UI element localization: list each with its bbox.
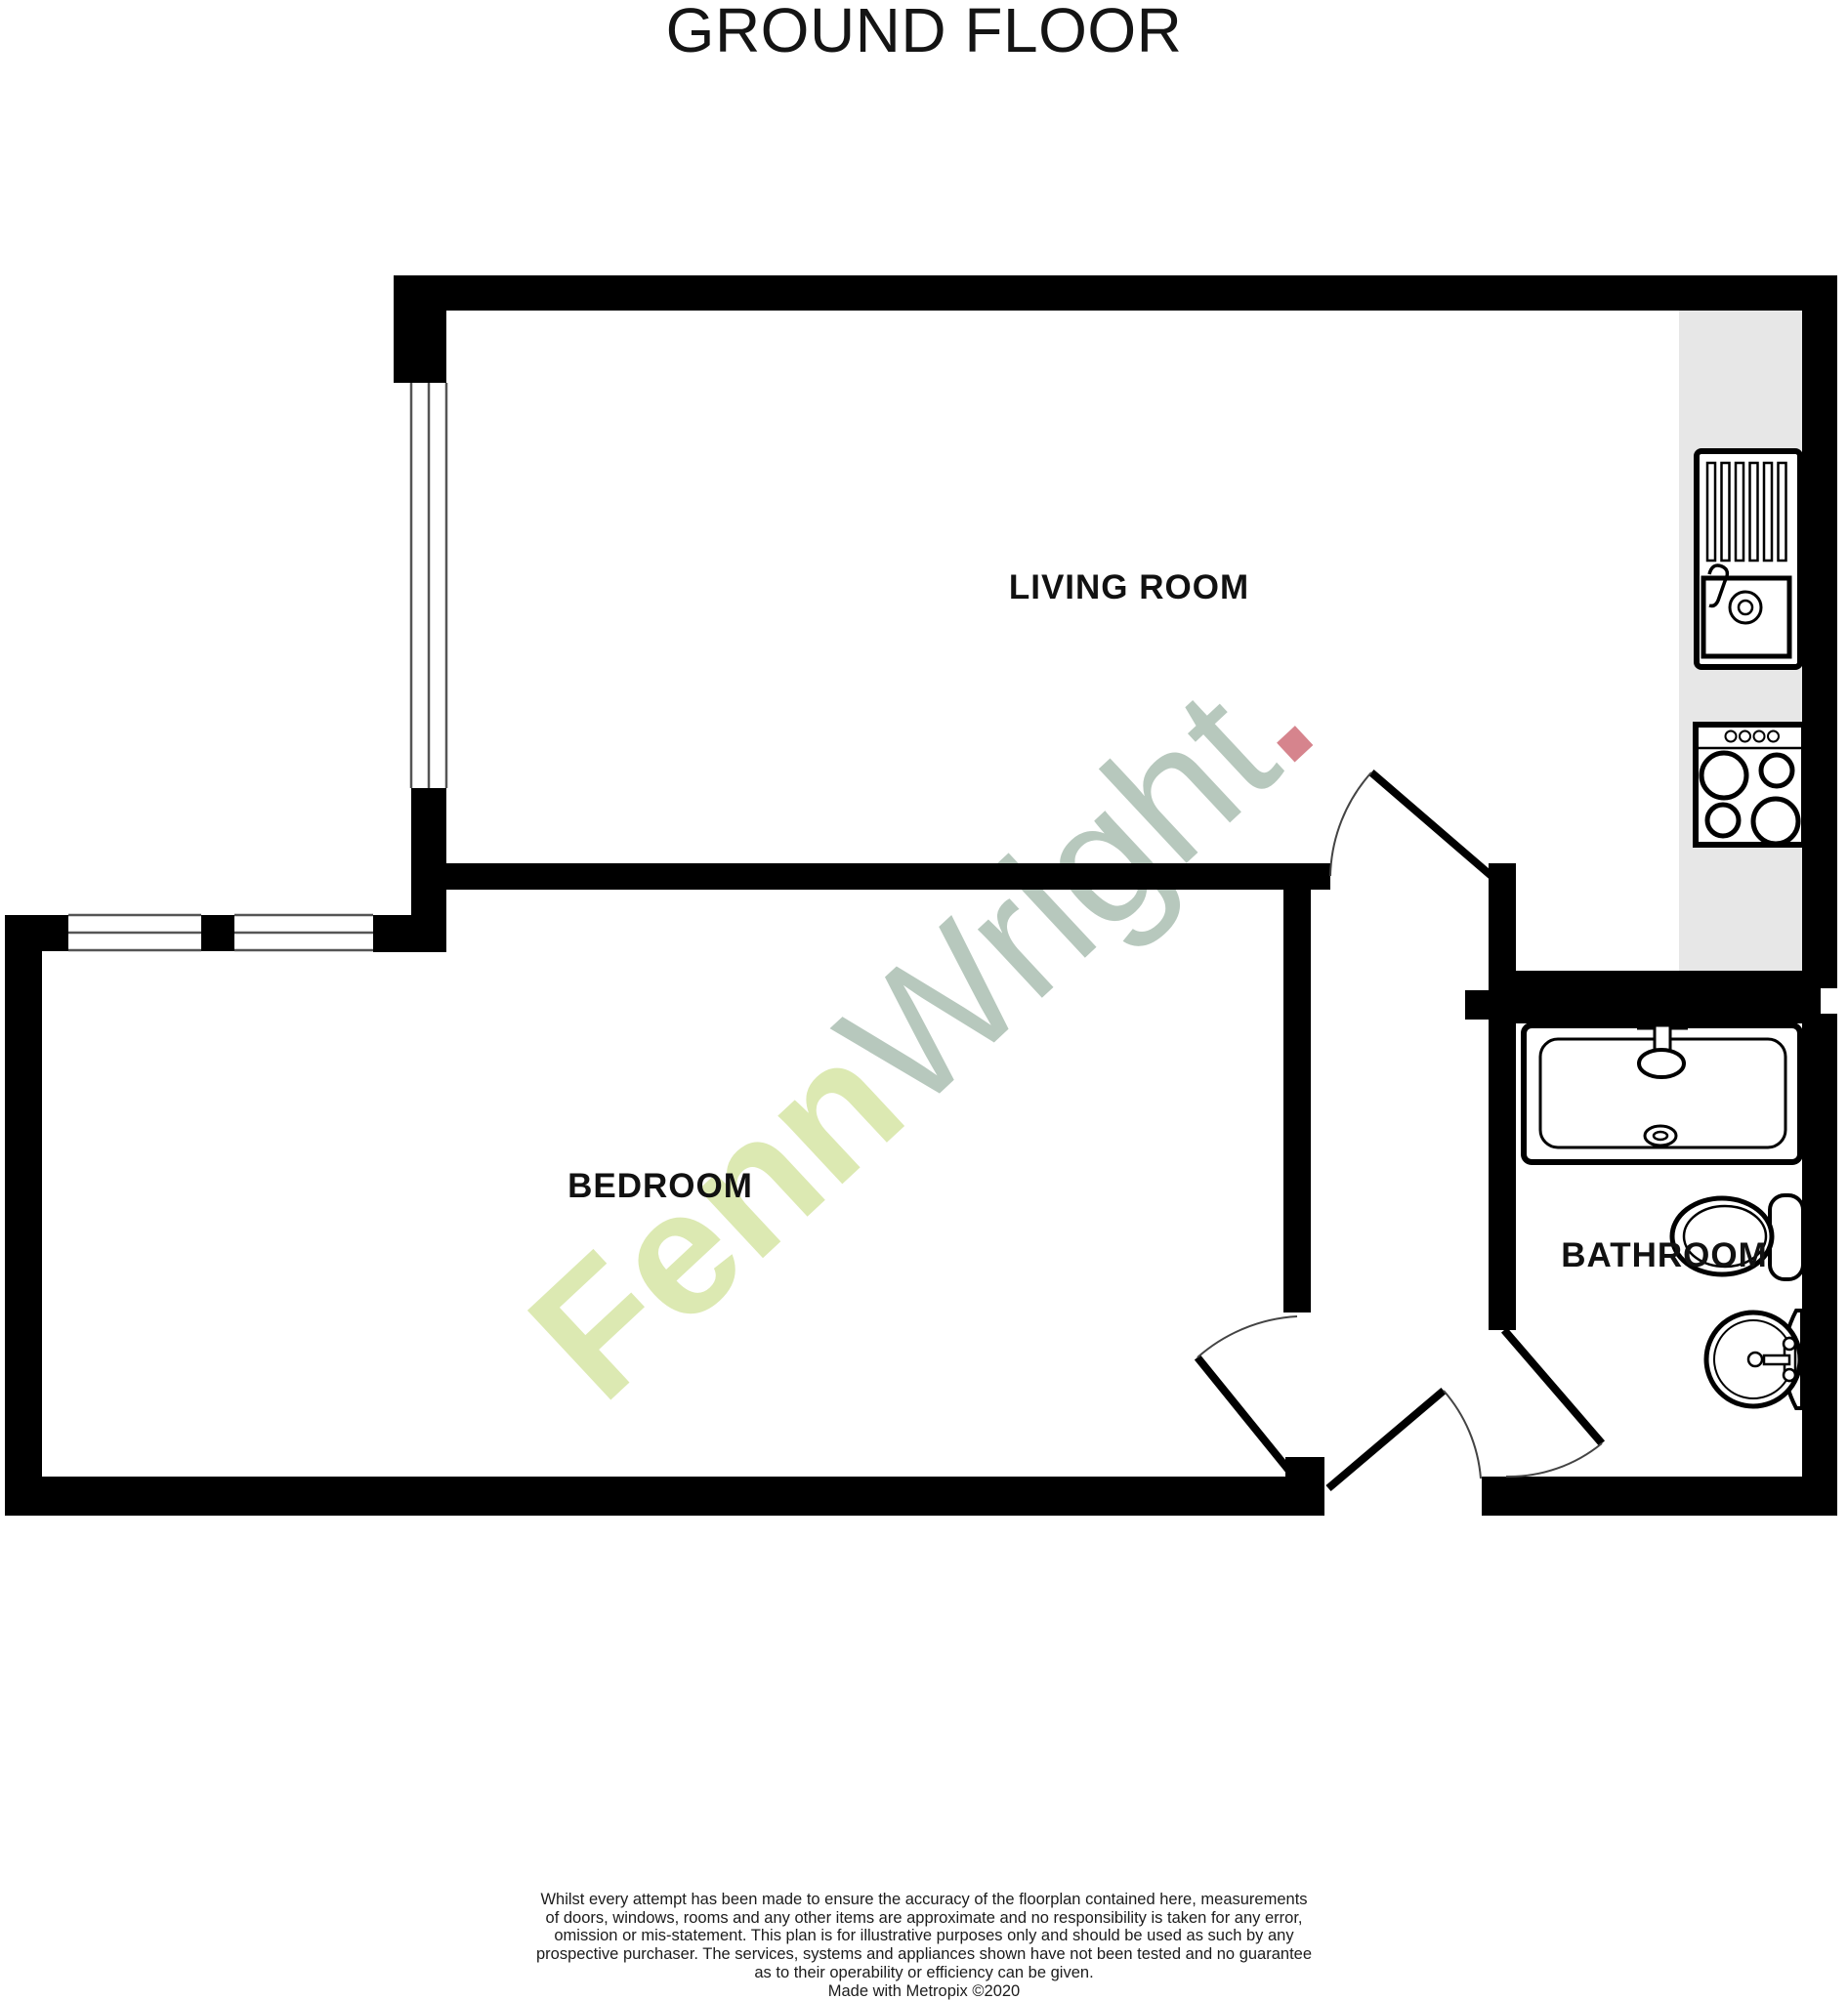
wall-right — [1802, 275, 1837, 1516]
living-room-window-icon — [411, 383, 446, 788]
wall-right-notch — [1821, 988, 1842, 1014]
wall-bedroom-bottom — [5, 1477, 1324, 1516]
wall-bathroom-left-stub — [1465, 990, 1516, 1020]
disclaimer-line: Whilst every attempt has been made to en… — [0, 1891, 1848, 1909]
walls — [5, 275, 1842, 1516]
bedroom-door-icon — [1197, 1316, 1297, 1480]
wall-bathroom-bottom — [1482, 1477, 1837, 1516]
wall-living-bedroom-divider — [446, 863, 1330, 890]
bathroom-label: BATHROOM — [1561, 1236, 1768, 1275]
wall-bedroom-right — [1283, 890, 1311, 1312]
kitchen-sink-icon — [1697, 451, 1800, 667]
basin-icon — [1706, 1311, 1802, 1408]
entrance-door-icon — [1328, 1391, 1481, 1488]
floorplan-drawing — [0, 0, 1848, 2000]
disclaimer-line: omission or mis-statement. This plan is … — [0, 1927, 1848, 1945]
hob-icon — [1696, 725, 1804, 845]
bathroom-door-icon — [1504, 1330, 1602, 1477]
disclaimer-line: prospective purchaser. The services, sys… — [0, 1945, 1848, 1964]
living-room-door-icon — [1330, 772, 1491, 876]
bedroom-label: BEDROOM — [567, 1167, 753, 1206]
wall-bedroom-left — [5, 915, 42, 1516]
wall-top — [394, 275, 1837, 311]
disclaimer-line: as to their operability or efficiency ca… — [0, 1964, 1848, 1982]
disclaimer: Whilst every attempt has been made to en… — [0, 1891, 1848, 2000]
page-title: GROUND FLOOR — [0, 0, 1848, 66]
wall-bedroom-top-corner — [373, 915, 446, 952]
windows — [68, 383, 446, 950]
wall-bedroom-top-pier — [201, 915, 234, 951]
wall-bathroom-left — [1489, 863, 1516, 1330]
wall-bathroom-top — [1516, 971, 1802, 1023]
disclaimer-made-with: Made with Metropix ©2020 — [0, 1982, 1848, 2000]
wall-left-upper-post — [394, 275, 446, 383]
disclaimer-line: of doors, windows, rooms and any other i… — [0, 1909, 1848, 1928]
floorplan-page: GROUND FLOOR FennWright. — [0, 0, 1848, 2000]
bedroom-window-right-icon — [234, 915, 373, 950]
bath-icon — [1524, 1025, 1800, 1162]
living-room-label: LIVING ROOM — [1009, 568, 1249, 607]
bedroom-window-left-icon — [68, 915, 201, 950]
